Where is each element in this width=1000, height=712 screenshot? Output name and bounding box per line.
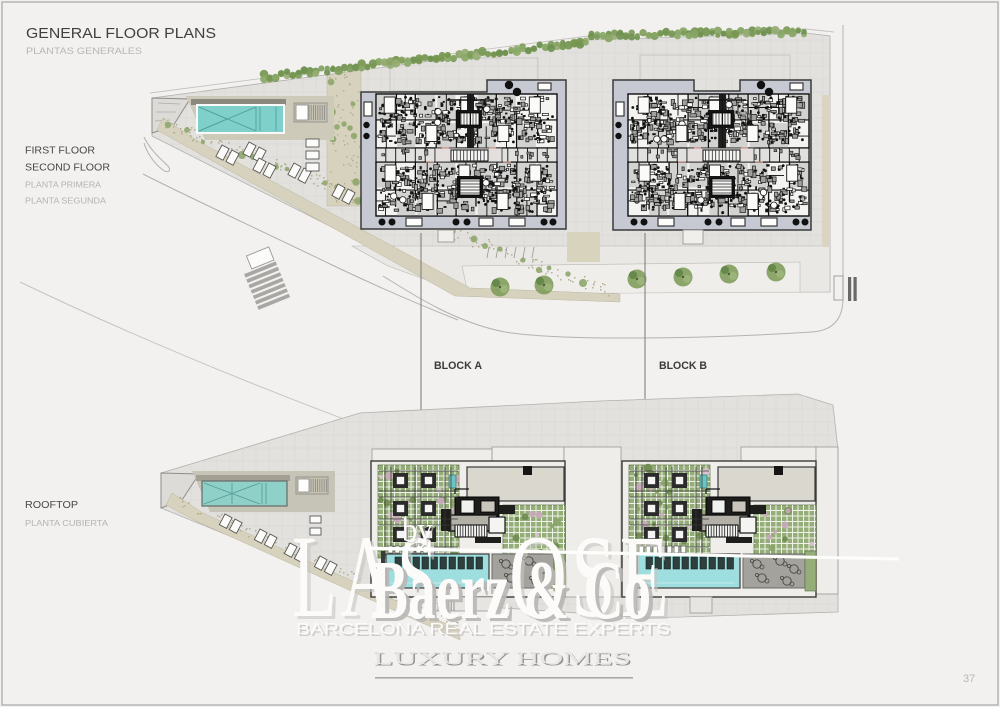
svg-text:FIRST FLOOR: FIRST FLOOR [25, 145, 95, 157]
svg-text:LUXURY HOMES: LUXURY HOMES [373, 648, 631, 668]
svg-text:BLOCK B: BLOCK B [659, 360, 707, 372]
svg-text:PLANTAS GENERALES: PLANTAS GENERALES [26, 46, 142, 56]
svg-text:BLOCK A: BLOCK A [434, 360, 482, 372]
svg-text:PLANTA SEGUNDA: PLANTA SEGUNDA [25, 196, 106, 206]
svg-text:BARCELONA REAL ESTATE EXPERTS: BARCELONA REAL ESTATE EXPERTS [296, 621, 670, 638]
svg-text:PLANTA CUBIERTA: PLANTA CUBIERTA [25, 518, 109, 528]
svg-text:PLANTA PRIMERA: PLANTA PRIMERA [25, 180, 101, 190]
svg-text:ROOFTOP: ROOFTOP [25, 499, 78, 511]
svg-text:GENERAL FLOOR PLANS: GENERAL FLOOR PLANS [26, 26, 216, 42]
svg-text:by: by [402, 511, 433, 549]
svg-text:37: 37 [963, 673, 975, 685]
svg-text:SECOND FLOOR: SECOND FLOOR [25, 162, 110, 174]
